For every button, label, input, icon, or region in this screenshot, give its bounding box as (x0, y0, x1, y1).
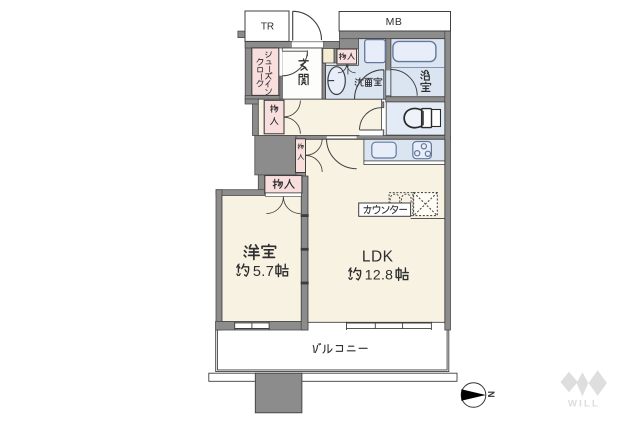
svg-text:MB: MB (386, 16, 403, 28)
svg-text:5.7: 5.7 (253, 264, 274, 280)
svg-text:LDK: LDK (362, 248, 394, 265)
svg-text:N: N (486, 391, 496, 398)
svg-text:WILL: WILL (568, 399, 600, 410)
svg-text:TR: TR (261, 22, 274, 33)
svg-text:12.8: 12.8 (365, 266, 393, 282)
